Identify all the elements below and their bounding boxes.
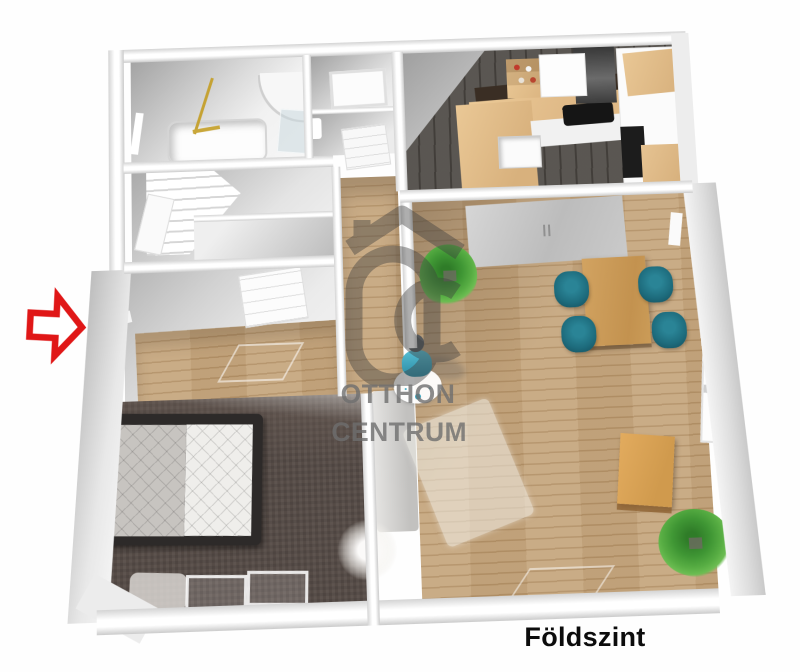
entrance-arrow-icon: [20, 282, 92, 369]
wc-door: [341, 123, 391, 170]
cooktop: [562, 101, 615, 126]
logo-letter-o: [354, 254, 432, 382]
bedroom-low-window-2: [247, 571, 309, 606]
dining-chair-2: [560, 315, 597, 353]
watermark-logo: [332, 196, 472, 386]
dining-chair-4: [651, 311, 688, 349]
floorplan-image: OTTHON CENTRUM Földszint: [0, 0, 800, 672]
wc-window-panel: [329, 68, 388, 109]
bed-blanket: [111, 425, 187, 536]
kitchen-sink: [498, 135, 543, 169]
kitchen-white-cabinet: [539, 53, 588, 97]
staircase-sub-room: [194, 217, 335, 259]
dining-chair-1: [553, 271, 590, 308]
watermark-line2: CENTRUM: [331, 414, 464, 452]
dining-chair-3: [637, 266, 674, 303]
bed-mattress: [184, 425, 253, 536]
floor-label: Földszint: [500, 622, 670, 653]
coffee-table: [617, 433, 675, 507]
hall-interior-door: [238, 266, 309, 328]
watermark-text: OTTHON CENTRUM: [331, 376, 464, 452]
watermark-line1: OTTHON: [331, 376, 464, 414]
